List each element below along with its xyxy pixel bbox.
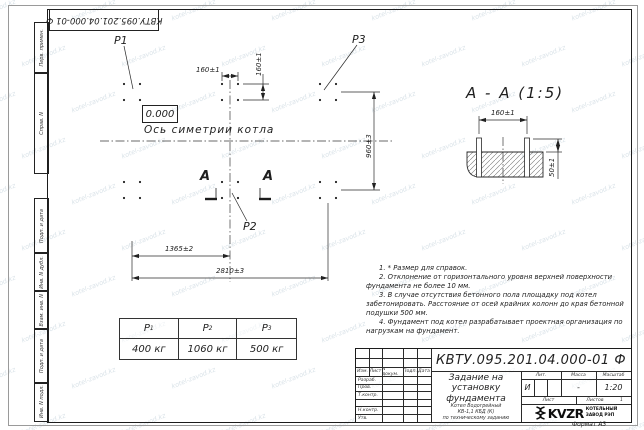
tb-col-data: Дата [417, 367, 431, 376]
title-block: Изм. Лист N докум. Подп. Дата Разраб. Пр… [355, 348, 632, 423]
spring-icon [535, 406, 546, 420]
load-point-p3-label: P3 [352, 33, 366, 46]
dim-text-160-h: 160±1 [196, 66, 220, 74]
kvzr-logo-caption: КОТЕЛЬНЫЙ ЗАВОД РЭП [586, 407, 618, 418]
dim-text-2810: 2810±3 [216, 267, 244, 275]
loads-table-value-p2: 1060 кг [179, 339, 238, 359]
tb-name-cell: Задание на установку фундамента Котел Во… [431, 371, 521, 424]
tb-sheet-label: Лист [521, 396, 576, 404]
dim-text-1365: 1365±2 [165, 245, 193, 253]
tb-doc-number: КВТУ.095.201.04.000-01 Ф [431, 349, 631, 371]
tb-logo-area: KVZR КОТЕЛЬНЫЙ ЗАВОД РЭП [521, 404, 631, 422]
boiler-symmetry-axis-label: Ось симетрии котла [144, 124, 274, 136]
rotated-doc-number: КВТУ.095.201.04.000-01 Ф [46, 15, 162, 25]
load-point-p2-label: P2 [243, 220, 257, 233]
strip-cell-sprav-n: Справ. N [34, 72, 49, 174]
loads-table-value-p1: 400 кг [120, 339, 179, 359]
tb-col-izm: Изм. [356, 367, 369, 376]
section-letter-right: А [263, 169, 273, 184]
note-2: 2. Отклонение от горизонтального уровня … [366, 273, 630, 291]
strip-cell-podp-data-2: Подп. и дата [34, 328, 49, 384]
rotated-doc-number-stamp: КВТУ.095.201.04.000-01 Ф [49, 9, 159, 31]
tb-sheets-value: 1 [612, 396, 631, 404]
dim-text-160-v: 160±1 [255, 52, 263, 76]
tb-row-prov: Пров. [356, 384, 384, 391]
note-1: 1. * Размер для справок. [366, 264, 630, 273]
dim-text-960: 960±3 [365, 134, 373, 158]
strip-cell-podp-data-1: Подп. и дата [34, 198, 49, 254]
elevation-mark: 0.000 [142, 105, 178, 123]
tb-mass-value: - [561, 379, 596, 396]
tb-subtitle-3: по техническому заданию [443, 416, 510, 422]
strip-cell-inv-dubl: Инв. N дубл. [34, 252, 49, 292]
loads-table: P1 P2 P3 400 кг 1060 кг 500 кг [119, 318, 297, 360]
strip-cell-vzam-inv: Взам. инв. N [34, 290, 49, 330]
tb-col-podp: Подп. [403, 367, 417, 376]
strip-cell-inv-podl: Инв. N подл. [34, 382, 49, 422]
drawing-sheet: kotel-zavod.kzkotel-zavod.kzkotel-zavod.… [0, 0, 644, 430]
format-label: Формат А3 [572, 421, 606, 428]
section-dim-text-50: 50±1 [548, 158, 556, 177]
tb-drawing-title: Задание на установку фундамента [431, 373, 521, 404]
section-letter-left: А [200, 169, 210, 184]
tb-mass-header: Масса [561, 371, 596, 379]
tb-row-razrab: Разраб. [356, 376, 384, 384]
tb-sheets-label: Листов [576, 396, 614, 404]
tb-row-tkontr: Т.контр. [356, 391, 384, 399]
tb-scale-value: 1:20 [596, 379, 631, 396]
tb-row-nkontr: Н.контр. [356, 406, 384, 414]
load-point-p1-label: P1 [114, 34, 128, 47]
note-4: 4. Фундамент под котел разрабатывает про… [366, 318, 630, 336]
loads-table-header-p2: P2 [179, 319, 238, 339]
section-view-title: А - А (1:5) [466, 84, 564, 102]
tb-scale-header: Масштаб [596, 371, 631, 379]
tb-col-doc: N докум. [382, 367, 403, 376]
loads-table-header-p1: P1 [120, 319, 179, 339]
tb-row-utv: Утв. [356, 414, 384, 422]
kvzr-logo: KVZR [548, 406, 584, 421]
tb-lit-value: И [521, 379, 534, 396]
strip-cell-perv-primen: Перв. примен. [34, 22, 49, 74]
technical-notes: 1. * Размер для справок. 2. Отклонение о… [366, 264, 630, 336]
tb-col-list: Лист [369, 367, 382, 376]
tb-lit-header: Лит. [521, 371, 561, 379]
note-3: 3. В случае отсутствия бетонного пола пл… [366, 291, 630, 318]
loads-table-value-p3: 500 кг [237, 339, 296, 359]
section-dim-text-160: 160±1 [491, 109, 515, 117]
loads-table-header-p3: P3 [237, 319, 296, 339]
